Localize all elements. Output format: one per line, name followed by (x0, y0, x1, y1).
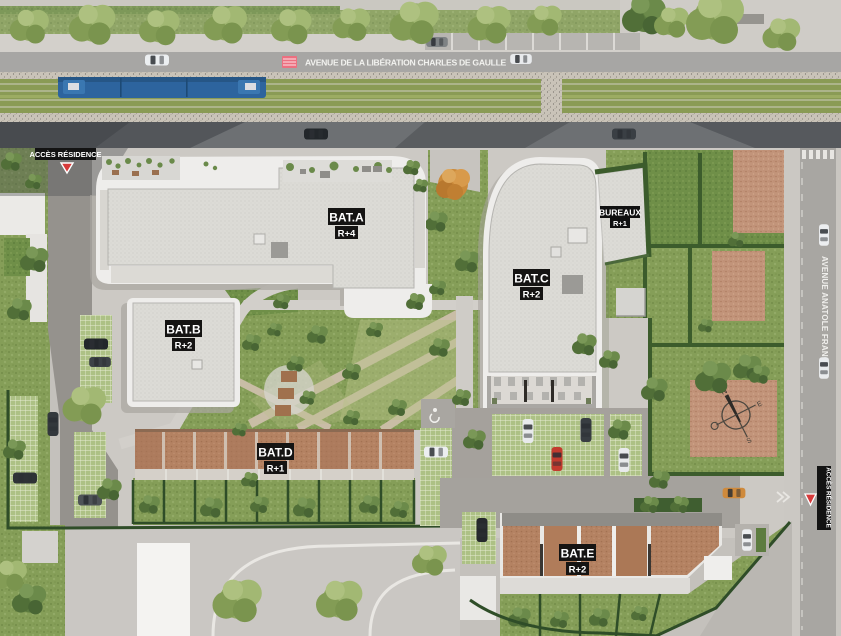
svg-text:AVENUE ANATOLE FRANCE: AVENUE ANATOLE FRANCE (820, 256, 829, 369)
svg-text:BAT.E: BAT.E (561, 547, 595, 561)
svg-text:R+4: R+4 (338, 229, 356, 240)
svg-text:ACCÈS RÉSIDENCE: ACCÈS RÉSIDENCE (29, 150, 101, 159)
svg-text:R+2: R+2 (175, 341, 193, 352)
svg-text:ACCÈS RÉSIDENCE: ACCÈS RÉSIDENCE (825, 467, 834, 528)
svg-text:AVENUE DE LA LIBÉRATION CHARLE: AVENUE DE LA LIBÉRATION CHARLES DE GAULL… (305, 58, 507, 68)
svg-text:BAT.A: BAT.A (329, 211, 364, 225)
svg-text:BAT.B: BAT.B (166, 323, 201, 337)
svg-text:R+1: R+1 (613, 219, 627, 228)
svg-text:BAT.D: BAT.D (258, 446, 293, 460)
svg-text:R+2: R+2 (569, 565, 587, 576)
svg-text:BUREAUX: BUREAUX (599, 208, 641, 218)
svg-text:R+2: R+2 (523, 290, 541, 301)
svg-text:BAT.C: BAT.C (514, 272, 549, 286)
svg-text:R+1: R+1 (267, 464, 285, 475)
